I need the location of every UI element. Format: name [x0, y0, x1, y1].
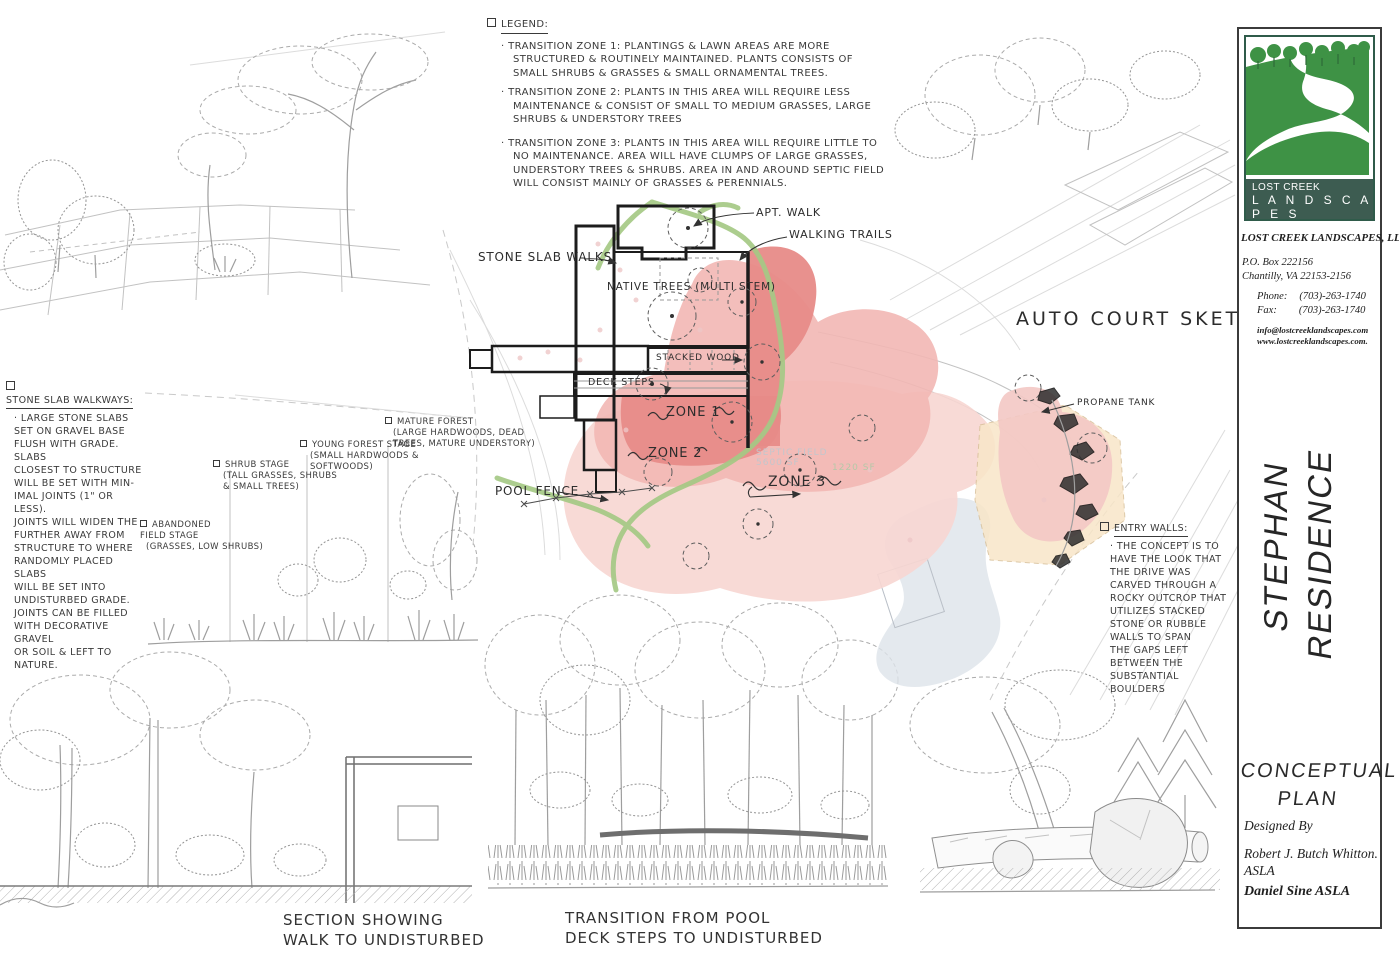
- stage-sub: (SMALL HARDWOODS & SOFTWOODS): [300, 451, 419, 473]
- stage-title: ABANDONED FIELD STAGE: [140, 520, 211, 541]
- entry-walls-body: · THE CONCEPT IS TO HAVE THE LOOK THAT T…: [1100, 540, 1230, 696]
- stone-slab-walkways-note: STONE SLAB WALKWAYS: · LARGE STONE SLABS…: [6, 381, 146, 672]
- checkbox-icon: [213, 460, 220, 467]
- designed-by-label: Designed By: [1244, 818, 1313, 834]
- legend-title: LEGEND:: [501, 18, 548, 34]
- patio-tree-sketch: [0, 10, 445, 360]
- ground-hatch: [0, 886, 472, 903]
- label-walking-trails: WALKING TRAILS: [789, 228, 893, 241]
- checkbox-icon: [1100, 522, 1109, 531]
- checkbox-icon: [385, 417, 392, 424]
- email: info@lostcreeklandscapes.com: [1257, 325, 1368, 335]
- ground-hatch: [920, 868, 1220, 890]
- grass-band: [488, 845, 888, 885]
- stage-sub: (GRASSES, LOW SHRUBS): [140, 542, 263, 553]
- section-sketch: [0, 640, 480, 950]
- fax-row: Fax:(703)-263-1740: [1257, 305, 1365, 316]
- website: www.lostcreeklandscapes.com.: [1257, 336, 1368, 346]
- legend-note: LEGEND: · TRANSITION ZONE 1: PLANTINGS &…: [487, 18, 887, 191]
- entry-walls-note: ENTRY WALLS: · THE CONCEPT IS TO HAVE TH…: [1100, 522, 1230, 696]
- label-pool-fence: POOL FENCE: [495, 484, 579, 498]
- legend-item-zone1: · TRANSITION ZONE 1: PLANTINGS & LAWN AR…: [487, 40, 887, 81]
- stage-title: SHRUB STAGE: [225, 460, 289, 470]
- company-name: LOST CREEK LANDSCAPES, LLC: [1241, 232, 1399, 244]
- project-title: STEPHAN RESIDENCE: [1254, 367, 1364, 736]
- logo-line1: LOST CREEK: [1252, 182, 1373, 193]
- label-zone1: ZONE 1: [666, 405, 720, 420]
- logo-line2: L A N D S C A P E S: [1252, 193, 1373, 221]
- wall-structure: [346, 757, 472, 903]
- phone-number: (703)-263-1740: [1299, 291, 1366, 302]
- label-apt-walk: APT. WALK: [756, 206, 821, 219]
- checkbox-icon: [6, 381, 15, 390]
- phone-row: Phone:(703)-263-1740: [1257, 291, 1366, 302]
- label-septic-field: SEPTIC FIELD 5600 SF: [756, 448, 828, 468]
- section-caption: SECTION SHOWING WALK TO UNDISTURBED: [283, 910, 485, 950]
- stage-sub: (TALL GRASSES, SHRUBS & SMALL TREES): [213, 471, 337, 493]
- address-line1: P.O. Box 222156: [1242, 257, 1313, 268]
- legend-item-zone2: · TRANSITION ZONE 2: PLANTS IN THIS AREA…: [487, 86, 887, 127]
- fax-number: (703)-263-1740: [1299, 305, 1366, 316]
- title-block: LOST CREEK L A N D S C A P E S LOST CREE…: [1237, 27, 1382, 929]
- checkbox-icon: [300, 440, 307, 447]
- deck-step-log: [600, 831, 868, 838]
- label-stone-slab-walks: STONE SLAB WALKS: [478, 250, 612, 264]
- address-line2: Chantilly, VA 22153-2156: [1242, 271, 1351, 282]
- document-title: CONCEPTUAL PLAN: [1236, 757, 1384, 813]
- label-native-trees: NATIVE TREES (MULTI STEM): [607, 281, 776, 293]
- label-zone3: ZONE 3: [768, 474, 826, 490]
- checkbox-icon: [140, 520, 147, 527]
- label-area-sf: 1220 SF: [832, 463, 876, 473]
- designer-2: Daniel Sine ASLA: [1244, 884, 1350, 900]
- label-deck-steps: DECK STEPS: [588, 377, 655, 388]
- stone-slab-title: STONE SLAB WALKWAYS:: [6, 394, 133, 409]
- checkbox-icon: [487, 18, 496, 27]
- transition-caption: TRANSITION FROM POOL DECK STEPS TO UNDIS…: [565, 908, 823, 948]
- logo-wordmark: LOST CREEK L A N D S C A P E S: [1246, 179, 1373, 219]
- conceptual-plan-sheet: LEGEND: · TRANSITION ZONE 1: PLANTINGS &…: [0, 0, 1399, 957]
- label-zone2: ZONE 2: [648, 446, 702, 461]
- label-propane-tank: PROPANE TANK: [1077, 398, 1155, 408]
- entry-walls-title: ENTRY WALLS:: [1114, 522, 1188, 537]
- legend-item-zone3: · TRANSITION ZONE 3: PLANTS IN THIS AREA…: [487, 137, 887, 191]
- label-stacked-wood: STACKED WOOD: [656, 353, 740, 363]
- stage-abandoned-label: ABANDONED FIELD STAGE (GRASSES, LOW SHRU…: [140, 520, 263, 553]
- company-logo: LOST CREEK L A N D S C A P E S: [1244, 35, 1375, 221]
- fax-label: Fax:: [1257, 305, 1277, 316]
- designer-1: Robert J. Butch Whitton. ASLA: [1244, 845, 1378, 879]
- logo-illustration: [1246, 37, 1369, 175]
- phone-label: Phone:: [1257, 291, 1287, 302]
- stone-slab-body: · LARGE STONE SLABS SET ON GRAVEL BASE F…: [6, 412, 146, 672]
